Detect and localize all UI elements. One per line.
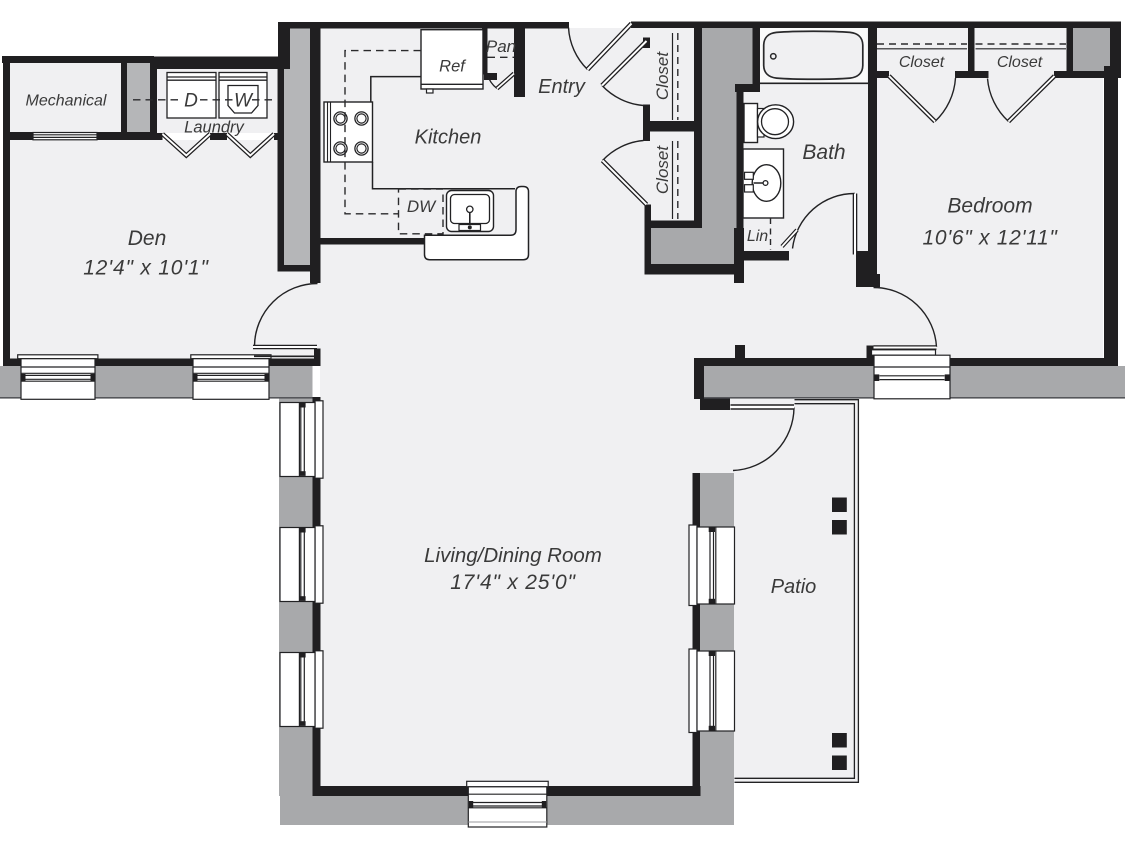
svg-text:DW: DW — [407, 197, 437, 216]
svg-text:Patio: Patio — [771, 576, 817, 598]
svg-text:Closet: Closet — [997, 54, 1043, 71]
svg-text:Ref: Ref — [439, 58, 467, 76]
svg-text:Mechanical: Mechanical — [26, 93, 107, 110]
svg-text:Bedroom: Bedroom — [947, 195, 1032, 218]
svg-text:Entry: Entry — [538, 76, 586, 98]
svg-text:10'6" x 12'11": 10'6" x 12'11" — [922, 227, 1058, 250]
svg-text:Lin: Lin — [747, 228, 768, 245]
svg-text:12'4" x 10'1": 12'4" x 10'1" — [83, 257, 209, 280]
svg-text:Closet: Closet — [653, 145, 672, 194]
svg-text:Closet: Closet — [899, 54, 945, 71]
svg-text:W: W — [234, 91, 254, 112]
svg-text:Laundry: Laundry — [184, 119, 245, 137]
svg-text:17'4" x 25'0": 17'4" x 25'0" — [450, 571, 576, 594]
svg-text:D: D — [184, 91, 198, 112]
svg-text:Bath: Bath — [802, 141, 845, 164]
svg-text:Den: Den — [128, 227, 167, 250]
svg-text:Closet: Closet — [653, 51, 672, 100]
svg-text:Pan: Pan — [486, 37, 516, 56]
svg-text:Kitchen: Kitchen — [415, 127, 482, 149]
svg-text:Living/Dining Room: Living/Dining Room — [424, 544, 602, 567]
